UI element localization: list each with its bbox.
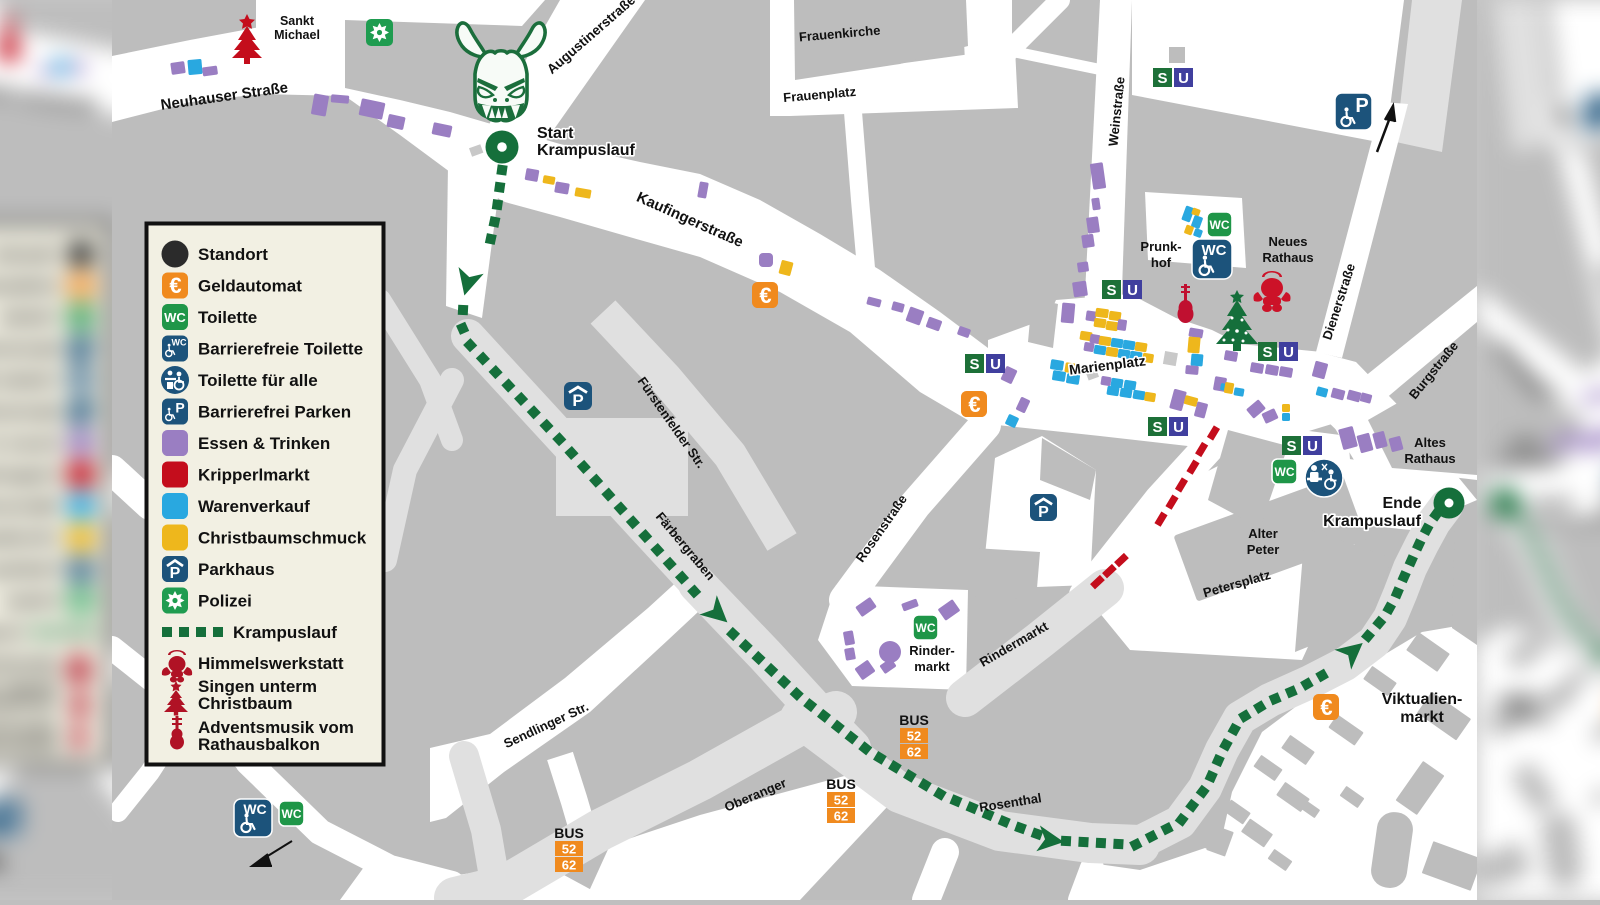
svg-text:WC: WC: [172, 338, 187, 348]
svg-text:€: €: [968, 392, 980, 417]
svg-text:P: P: [1355, 95, 1368, 117]
svg-text:Barrierefreie Toilette: Barrierefreie Toilette: [198, 340, 363, 359]
svg-text:Toilette: Toilette: [198, 308, 257, 327]
svg-text:Essen & Trinken: Essen & Trinken: [198, 434, 330, 453]
svg-text:Rathausbalkon: Rathausbalkon: [198, 735, 320, 754]
svg-text:52: 52: [562, 842, 576, 857]
svg-text:52: 52: [907, 729, 921, 744]
svg-text:BUS: BUS: [554, 825, 584, 841]
svg-text:Standort: Standort: [198, 245, 268, 264]
svg-text:S: S: [1286, 438, 1296, 455]
svg-text:62: 62: [834, 809, 848, 824]
svg-text:markt: markt: [1400, 709, 1444, 726]
svg-text:Toilette für alle: Toilette für alle: [198, 371, 318, 390]
svg-text:Warenverkauf: Warenverkauf: [198, 497, 310, 516]
svg-text:€: €: [169, 273, 181, 298]
svg-text:U: U: [1127, 282, 1138, 299]
svg-text:Ende: Ende: [1382, 495, 1421, 512]
svg-text:S: S: [969, 356, 979, 373]
svg-text:Krampuslauf: Krampuslauf: [537, 142, 635, 159]
svg-text:S: S: [1157, 70, 1167, 87]
svg-text:hof: hof: [1151, 255, 1172, 270]
svg-text:S: S: [1106, 282, 1116, 299]
svg-text:Alter: Alter: [1248, 526, 1278, 541]
svg-text:Rinder-: Rinder-: [909, 643, 955, 658]
svg-text:BUS: BUS: [899, 712, 929, 728]
svg-text:Neues: Neues: [1268, 234, 1307, 249]
svg-text:WC: WC: [164, 310, 186, 325]
svg-text:Sankt: Sankt: [280, 14, 315, 28]
svg-text:S: S: [1152, 419, 1162, 436]
svg-text:WC: WC: [916, 621, 936, 635]
svg-text:Peter: Peter: [1247, 542, 1280, 557]
svg-text:P: P: [170, 565, 181, 582]
svg-text:U: U: [1178, 70, 1189, 87]
svg-text:Start: Start: [537, 125, 574, 142]
svg-text:U: U: [1307, 438, 1318, 455]
svg-text:Krampuslauf: Krampuslauf: [1323, 513, 1421, 530]
svg-text:Michael: Michael: [274, 28, 320, 42]
svg-text:P: P: [175, 400, 184, 416]
svg-text:WC: WC: [1275, 465, 1295, 479]
svg-text:Christbaumschmuck: Christbaumschmuck: [198, 529, 367, 548]
svg-text:P: P: [572, 391, 583, 410]
svg-text:Kripperlmarkt: Kripperlmarkt: [198, 466, 310, 485]
svg-text:P: P: [1038, 504, 1049, 521]
svg-text:62: 62: [907, 745, 921, 760]
svg-text:€: €: [759, 283, 771, 308]
svg-text:U: U: [1283, 344, 1294, 361]
svg-text:Christbaum: Christbaum: [198, 694, 292, 713]
svg-text:62: 62: [562, 858, 576, 873]
svg-text:Geldautomat: Geldautomat: [198, 277, 302, 296]
svg-text:Viktualien-: Viktualien-: [1382, 691, 1463, 708]
svg-text:WC: WC: [1210, 218, 1230, 232]
svg-text:BUS: BUS: [826, 776, 856, 792]
svg-text:Parkhaus: Parkhaus: [198, 560, 275, 579]
svg-text:€: €: [1320, 695, 1332, 720]
svg-text:Altes: Altes: [1414, 435, 1446, 450]
svg-text:Himmelswerkstatt: Himmelswerkstatt: [198, 654, 344, 673]
svg-text:U: U: [1173, 419, 1184, 436]
svg-text:Barrierefrei Parken: Barrierefrei Parken: [198, 403, 351, 422]
svg-text:markt: markt: [914, 659, 950, 674]
svg-text:S: S: [1262, 344, 1272, 361]
svg-text:52: 52: [834, 793, 848, 808]
svg-text:Rathaus: Rathaus: [1262, 250, 1313, 265]
svg-text:Rathaus: Rathaus: [1404, 451, 1455, 466]
svg-text:Prunk-: Prunk-: [1140, 239, 1181, 254]
svg-text:U: U: [990, 356, 1001, 373]
svg-text:WC: WC: [282, 807, 302, 821]
svg-text:Polizei: Polizei: [198, 592, 252, 611]
svg-text:Krampuslauf: Krampuslauf: [233, 623, 337, 642]
